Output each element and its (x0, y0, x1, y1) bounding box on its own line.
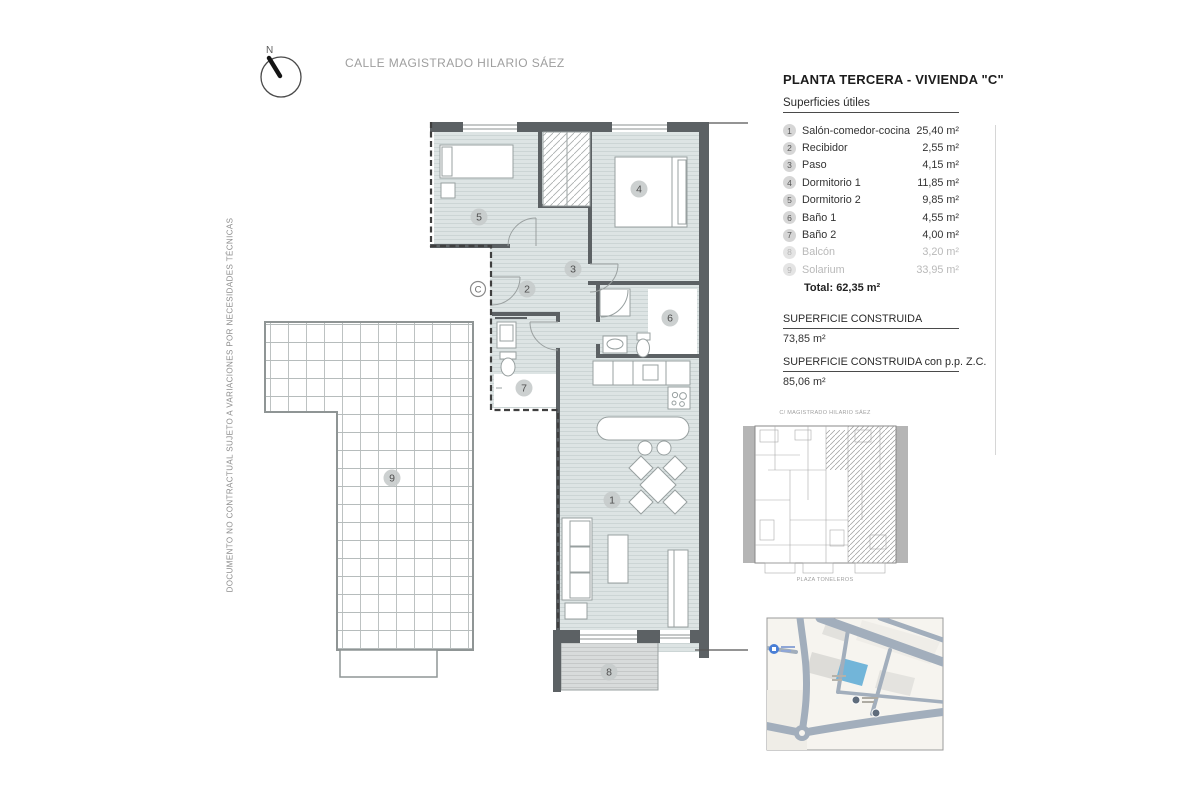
map-marker-icon (872, 709, 880, 717)
keyplan-plaza-label: PLAZA TONELEROS (797, 577, 854, 583)
floor-plan-svg: C 1 2 3 4 5 6 7 8 9 (225, 95, 755, 710)
info-panel: PLANTA TERCERA - VIVIENDA "C" Superficie… (783, 72, 983, 399)
total-label: Total: (804, 282, 833, 294)
room-name: Baño 1 (802, 212, 922, 224)
location-map (765, 616, 945, 752)
row-badge: 8 (783, 246, 796, 259)
panel-divider (995, 125, 996, 455)
built-label: SUPERFICIE CONSTRUIDA (783, 313, 959, 329)
stool (657, 441, 671, 455)
svg-text:7: 7 (521, 383, 527, 395)
room-area: 4,55 m² (922, 212, 959, 224)
table-row: 9Solarium33,95 m² (783, 261, 959, 278)
room-area: 25,40 m² (916, 125, 959, 137)
kitchen-peninsula (597, 417, 689, 440)
plan-sheet: { "header": { "title": "PLANTA TERCERA -… (0, 0, 1200, 800)
room-name: Dormitorio 1 (802, 177, 917, 189)
areas-table: 1Salón-comedor-cocina25,40 m² 2Recibidor… (783, 122, 959, 279)
table-row: 5Dormitorio 29,85 m² (783, 192, 959, 209)
page-title: PLANTA TERCERA - VIVIENDA "C" (783, 72, 983, 87)
total-value: 62,35 m² (836, 282, 880, 294)
room-name: Solarium (802, 264, 916, 276)
table-row: 3Paso4,15 m² (783, 157, 959, 174)
row-badge: 1 (783, 124, 796, 137)
total-area: Total: 62,35 m² (804, 282, 983, 294)
row-badge: 7 (783, 229, 796, 242)
room-area: 4,15 m² (922, 159, 959, 171)
badge-room-7: 7 (516, 380, 533, 397)
room-area: 11,85 m² (917, 177, 959, 189)
svg-text:2: 2 (524, 284, 530, 296)
bed-dormitorio-1 (615, 157, 687, 227)
room-name: Baño 2 (802, 229, 922, 241)
built-with-common-label: SUPERFICIE CONSTRUIDA con p.p. Z.C. (783, 356, 959, 372)
coffee-table (608, 535, 628, 583)
compass-n-label: N (266, 45, 273, 56)
table-row: 4Dormitorio 111,85 m² (783, 174, 959, 191)
room-name: Paso (802, 159, 922, 171)
areas-subtitle: Superficies útiles (783, 97, 959, 113)
table-row: 2Recibidor2,55 m² (783, 139, 959, 156)
table-row: 8Balcón3,20 m² (783, 244, 959, 261)
row-badge: 9 (783, 263, 796, 276)
terrace-step (340, 650, 437, 677)
table-row: 6Baño 14,55 m² (783, 209, 959, 226)
wardrobe (543, 132, 590, 206)
svg-text:6: 6 (667, 313, 673, 325)
svg-text:C: C (475, 284, 482, 295)
built-area-section: SUPERFICIE CONSTRUIDA 73,85 m² SUPERFICI… (783, 313, 959, 388)
keyplan-highlight-vivienda-c (848, 426, 896, 563)
badge-room-2: 2 (519, 281, 536, 298)
svg-text:8: 8 (606, 667, 612, 679)
solarium-terrace (265, 322, 473, 677)
svg-text:4: 4 (636, 184, 642, 196)
street-label: CALLE MAGISTRADO HILARIO SÁEZ (345, 56, 565, 70)
row-badge: 4 (783, 176, 796, 189)
room-name: Dormitorio 2 (802, 194, 922, 206)
badge-room-9: 9 (384, 470, 401, 487)
room-area: 33,95 m² (916, 264, 959, 276)
badge-room-3: 3 (565, 261, 582, 278)
room-area: 2,55 m² (922, 142, 959, 154)
badge-room-8: 8 (601, 664, 618, 681)
keyplan-street-label: C/ MAGISTRADO HILARIO SÁEZ (779, 409, 871, 416)
table-row: 7Baño 24,00 m² (783, 226, 959, 243)
room-name: Recibidor (802, 142, 922, 154)
badge-room-6: 6 (662, 310, 679, 327)
row-badge: 3 (783, 159, 796, 172)
svg-text:3: 3 (570, 264, 576, 276)
built-value: 73,85 m² (783, 333, 959, 345)
map-marker-icon (852, 696, 860, 704)
badge-room-5: 5 (471, 209, 488, 226)
room-area: 9,85 m² (922, 194, 959, 206)
built-with-common-value: 85,06 m² (783, 376, 959, 388)
row-badge: 6 (783, 211, 796, 224)
svg-text:1: 1 (609, 495, 615, 507)
svg-text:5: 5 (476, 212, 482, 224)
tv-unit (668, 550, 688, 627)
key-plan-svg: C/ MAGISTRADO HILARIO SÁEZ PLAZA TONELER… (735, 405, 915, 595)
room-name: Balcón (802, 246, 922, 258)
room-name: Salón-comedor-cocina (802, 125, 916, 137)
badge-room-4: 4 (631, 181, 648, 198)
unit-letter-marker: C (471, 282, 486, 297)
stool (638, 441, 652, 455)
table-row: 1Salón-comedor-cocina25,40 m² (783, 122, 959, 139)
svg-text:9: 9 (389, 473, 395, 485)
badge-room-1: 1 (604, 492, 621, 509)
row-badge: 2 (783, 142, 796, 155)
room-area: 3,20 m² (922, 246, 959, 258)
room-area: 4,00 m² (922, 229, 959, 241)
row-badge: 5 (783, 194, 796, 207)
